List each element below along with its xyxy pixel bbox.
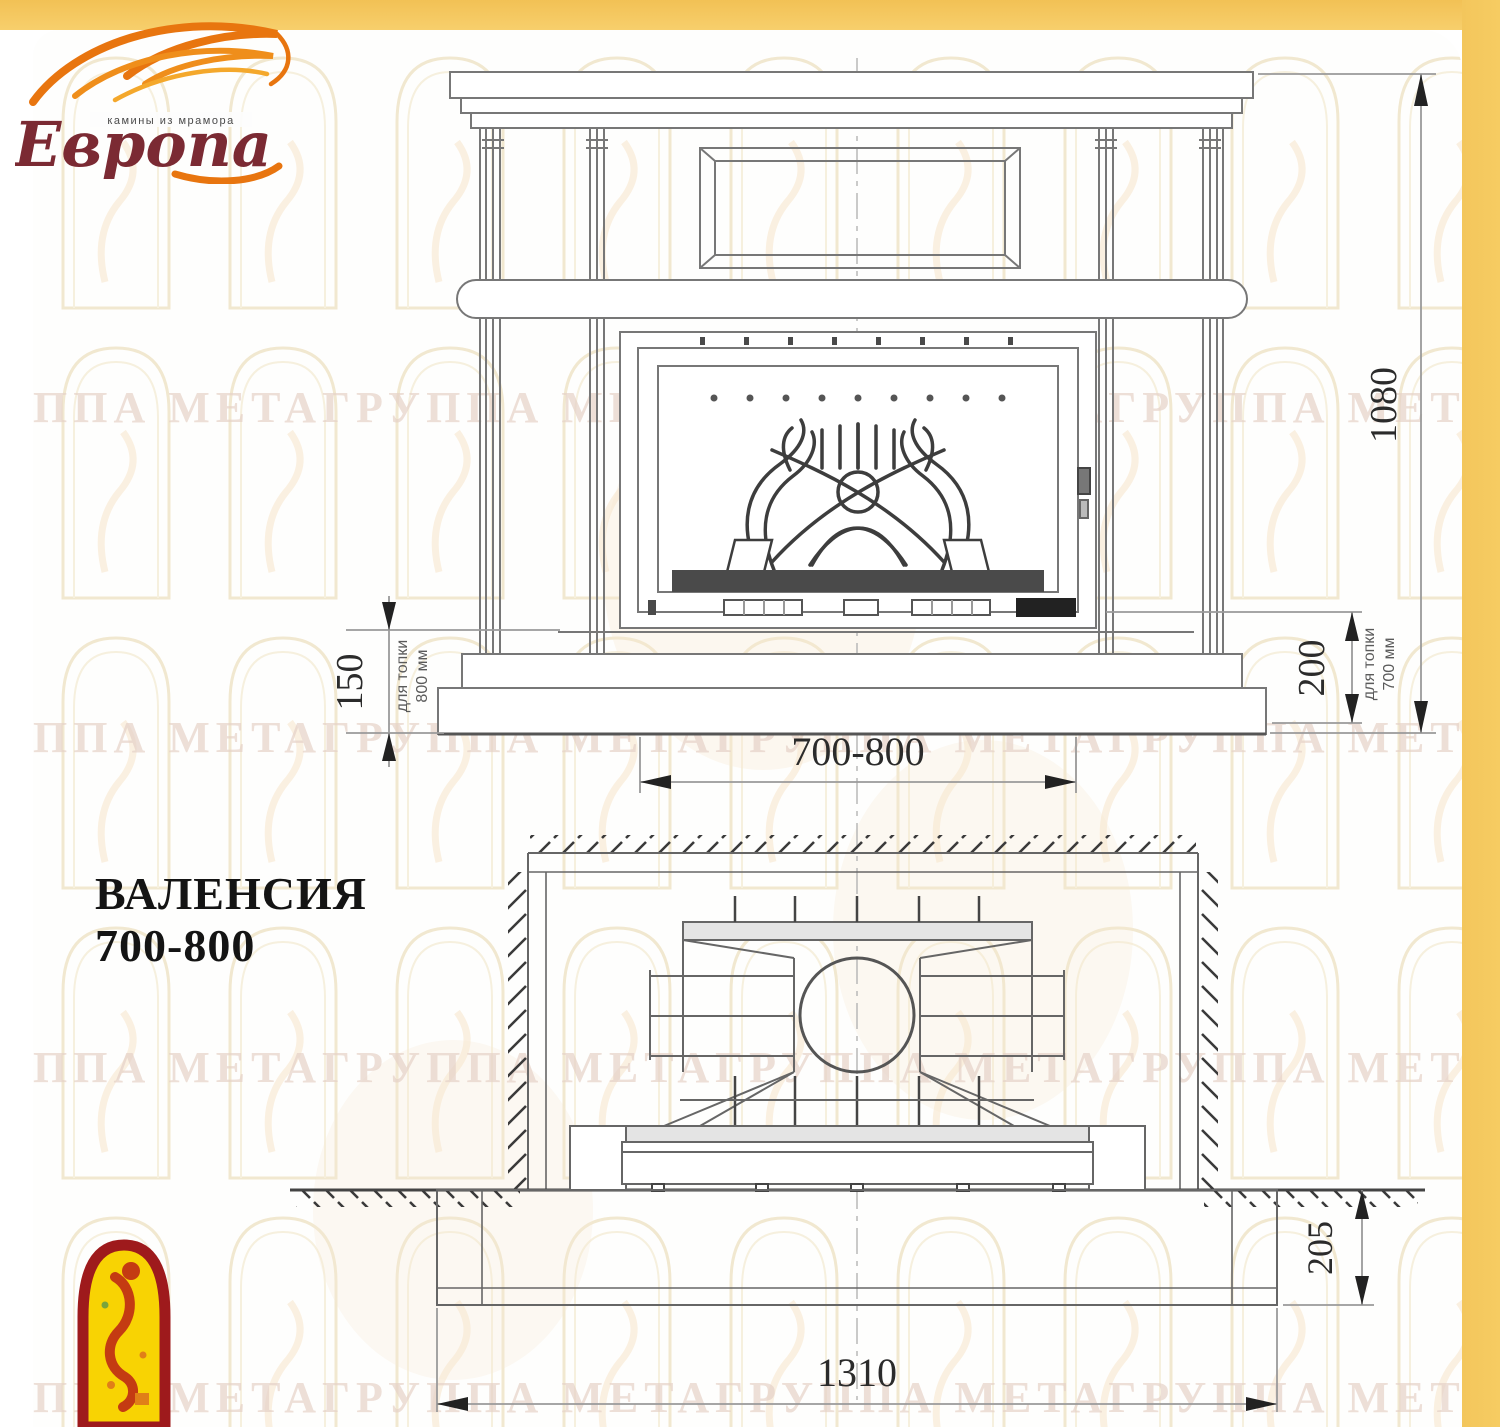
model-title-line2: 700-800	[95, 920, 367, 972]
label-note-right-2: 700 мм	[1381, 637, 1398, 690]
label-note-right-1: для топки	[1361, 628, 1378, 700]
door-handle	[1078, 468, 1090, 518]
label-total-height: 1080	[1363, 367, 1405, 443]
hearth-strip	[672, 570, 1044, 592]
company-emblem	[75, 1233, 175, 1427]
label-platform-width: 1310	[817, 1350, 897, 1395]
label-platform-depth: 205	[1300, 1221, 1340, 1275]
label-hearth-left: 150	[329, 654, 371, 711]
torus-band	[457, 280, 1247, 318]
page: ППА МЕТАГРУППА МЕТАГРУППА МЕТАГРУППА МЕТ…	[0, 0, 1500, 1427]
mantel-shelf	[450, 72, 1253, 128]
brand-logo: камины из мрамора Европа	[15, 4, 315, 184]
label-note-left-1: для топки	[394, 640, 411, 712]
front-view	[438, 72, 1266, 734]
label-hearth-right: 200	[1291, 640, 1333, 697]
hearth-platform	[437, 1190, 1277, 1305]
firebox	[620, 332, 1096, 628]
label-firebox-width: 700-800	[791, 729, 924, 774]
model-title-line1: ВАЛЕНСИЯ	[95, 868, 367, 920]
label-note-left-2: 800 мм	[414, 649, 431, 702]
logo-wordmark: Европа	[15, 108, 272, 181]
fireplace-plan	[570, 896, 1145, 1191]
frieze-panel	[700, 148, 1020, 268]
model-title: ВАЛЕНСИЯ 700-800	[95, 868, 367, 971]
technical-drawing: 1080 150 для топки 800 мм 200 для топки …	[0, 0, 1500, 1427]
base-plinth	[438, 632, 1266, 734]
